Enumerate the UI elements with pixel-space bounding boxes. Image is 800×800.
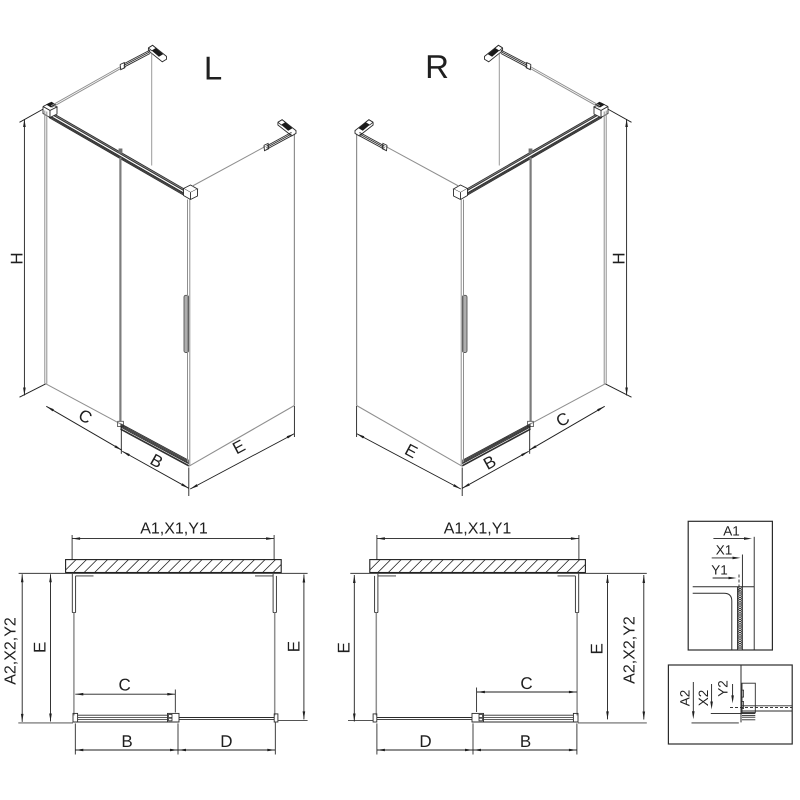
svg-text:H: H (7, 252, 26, 264)
svg-text:A1: A1 (723, 524, 740, 539)
svg-text:E: E (31, 642, 50, 653)
svg-text:A2: A2 (678, 690, 693, 707)
svg-text:Y1: Y1 (711, 563, 728, 578)
svg-text:D: D (419, 732, 431, 751)
svg-text:A2,X2,Y2: A2,X2,Y2 (622, 616, 639, 684)
svg-text:C: C (520, 674, 532, 693)
svg-text:A1,X1,Y1: A1,X1,Y1 (140, 521, 208, 538)
svg-text:E: E (285, 641, 304, 652)
svg-text:R: R (425, 48, 449, 85)
svg-text:H: H (610, 252, 629, 264)
svg-text:L: L (204, 50, 222, 87)
svg-text:X1: X1 (716, 543, 733, 558)
svg-text:Y2: Y2 (716, 680, 731, 697)
svg-text:B: B (520, 732, 531, 751)
svg-text:A1,X1,Y1: A1,X1,Y1 (444, 521, 512, 538)
svg-text:X2: X2 (696, 690, 711, 707)
svg-text:E: E (588, 643, 607, 654)
svg-text:D: D (220, 732, 232, 751)
svg-text:C: C (118, 676, 130, 695)
svg-text:E: E (335, 642, 354, 653)
svg-text:A2,X2,Y2: A2,X2,Y2 (3, 617, 20, 685)
svg-text:B: B (121, 732, 132, 751)
